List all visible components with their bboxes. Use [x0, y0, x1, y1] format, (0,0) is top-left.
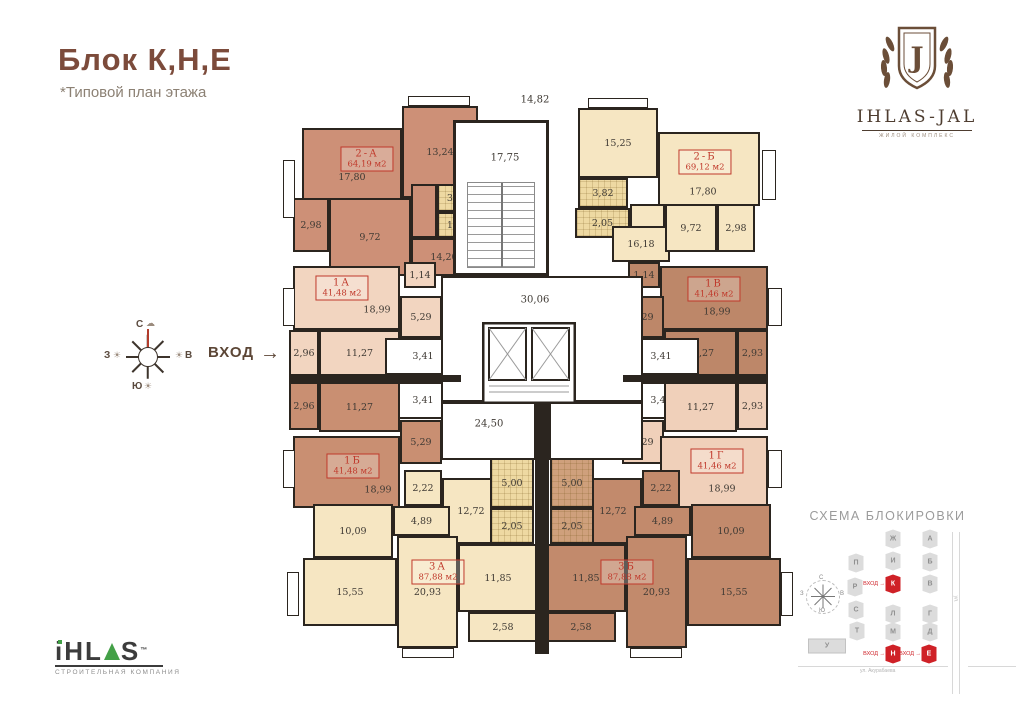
- room-area-label: 3,41: [412, 351, 433, 362]
- dimension-label: 17,75: [491, 153, 520, 164]
- apartment-label: 1А41,48 м2: [315, 276, 368, 301]
- room-area-label: 2,93: [742, 348, 763, 359]
- room: 2,93: [737, 330, 768, 376]
- room-area-label: 18,99: [708, 484, 735, 495]
- room-area-label: 20,93: [414, 587, 441, 598]
- schema-compass-south: Ю: [819, 608, 825, 614]
- room-area-label: 1,14: [409, 270, 430, 281]
- room-area-label: 4,89: [411, 516, 432, 527]
- room: 2,98: [717, 204, 755, 252]
- room: 2,22: [404, 470, 442, 506]
- room-area-label: 2,58: [570, 622, 591, 633]
- schema-block: К: [886, 575, 901, 594]
- room: 11,27: [319, 382, 400, 432]
- room: 9,72: [665, 204, 717, 252]
- room: 2,05: [550, 508, 594, 544]
- room-area-label: 15,55: [720, 587, 747, 598]
- schema-block: Б: [923, 553, 938, 572]
- balcony: [283, 160, 295, 218]
- street-name-vertical: ул.: [952, 596, 958, 603]
- balcony: [781, 572, 793, 616]
- room: 2,96: [289, 382, 319, 430]
- room-area-label: 10,09: [717, 526, 744, 537]
- street-line: [952, 532, 953, 694]
- room-area-label: 16,18: [627, 239, 654, 250]
- staircase: [467, 182, 535, 268]
- room: [630, 204, 665, 228]
- room-area-label: 15,25: [604, 138, 631, 149]
- schema-block: В: [923, 575, 938, 594]
- schema-block: М: [886, 623, 901, 642]
- room: 10,09: [313, 504, 393, 558]
- balcony: [768, 288, 782, 326]
- room-area-label: 9,72: [359, 232, 380, 243]
- apartment-label: 3Б87,88 м2: [600, 560, 653, 585]
- center-wall: [535, 404, 549, 654]
- schema-block: Е: [922, 645, 937, 664]
- schema-compass-west: З: [800, 591, 804, 597]
- room-area-label: 2,93: [742, 401, 763, 412]
- apartment-area: 41,48 м2: [322, 289, 361, 299]
- elevator-core: [482, 322, 576, 404]
- balcony: [402, 648, 454, 658]
- room: 11,27: [664, 382, 737, 432]
- room-area-label: 11,85: [484, 573, 511, 584]
- room-area-label: 18,99: [364, 485, 391, 496]
- apartment-area: 87,88 м2: [418, 573, 457, 583]
- room-area-label: 11,27: [346, 402, 373, 413]
- room: 9,72: [329, 198, 411, 276]
- room-area-label: 2,22: [650, 483, 671, 494]
- room-area-label: 2,58: [492, 622, 513, 633]
- room-area-label: 10,09: [339, 526, 366, 537]
- room: 3,82: [578, 178, 628, 208]
- street-name-horizontal: ул. Акурабаева: [860, 668, 895, 674]
- builder-logo-tagline: СТРОИТЕЛЬНАЯ КОМПАНИЯ: [55, 669, 215, 676]
- schema-compass-north: С: [819, 575, 823, 581]
- room: 5,29: [400, 420, 442, 464]
- balcony: [588, 98, 648, 108]
- schema-block: Т: [850, 622, 865, 641]
- room: 2,58: [468, 612, 538, 642]
- apartment-label: 1Б41,48 м2: [326, 454, 379, 479]
- schema-compass-east: В: [840, 591, 844, 597]
- room-area-label: 3,41: [650, 351, 671, 362]
- schema-block: Ж: [886, 530, 901, 549]
- stair-divider: [501, 183, 503, 267]
- room: 5,00: [490, 458, 534, 508]
- balcony: [630, 648, 682, 658]
- schema-block: Д: [923, 623, 938, 642]
- builder-logo: iHLS™ СТРОИТЕЛЬНАЯ КОМПАНИЯ: [55, 638, 215, 676]
- room: 4,89: [393, 506, 450, 536]
- room-area-label: 5,29: [410, 437, 431, 448]
- balcony: [287, 572, 299, 616]
- apartment-area: 64,19 м2: [347, 160, 386, 170]
- schema-block: П: [849, 554, 864, 573]
- street-line: [968, 666, 1016, 667]
- room-area-label: 5,00: [561, 478, 582, 489]
- room: 16,18: [612, 226, 670, 262]
- room: 2,05: [490, 508, 534, 544]
- schema-block: Л: [886, 605, 901, 624]
- apartment-label: 2-А64,19 м2: [340, 147, 393, 172]
- trademark-symbol: ™: [140, 647, 149, 654]
- room-area-label: 15,55: [336, 587, 363, 598]
- apartment-area: 41,48 м2: [333, 467, 372, 477]
- room: 11,85: [458, 544, 538, 612]
- room: 15,55: [303, 558, 397, 626]
- street-line: [959, 532, 960, 694]
- room: 2,22: [642, 470, 680, 506]
- balcony: [762, 150, 776, 200]
- corridor-lower-left: [441, 402, 536, 460]
- room: [411, 184, 437, 238]
- schema-block: Г: [923, 605, 938, 624]
- room-area-label: 2,96: [293, 401, 314, 412]
- floor-plan: 17,8013,242,989,723,261,6614,2018,991,14…: [0, 0, 1024, 724]
- logo-green-dot: [58, 640, 62, 644]
- room: 20,93: [397, 536, 458, 648]
- balcony: [768, 450, 782, 488]
- room-area-label: 18,99: [703, 307, 730, 318]
- street-line: [798, 666, 948, 667]
- room-area-label: 17,80: [689, 187, 716, 198]
- room-area-label: 2,05: [592, 218, 613, 229]
- schema-entry-label: ВХОД →: [863, 651, 885, 657]
- room-area-label: 2,96: [293, 348, 314, 359]
- room: 15,25: [578, 108, 658, 178]
- apartment-label: 3А87,88 м2: [411, 560, 464, 585]
- room-area-label: 11,85: [572, 573, 599, 584]
- schema-block: А: [923, 530, 938, 549]
- west-cross-wall: [289, 375, 461, 382]
- room-area-label: 2,05: [501, 521, 522, 532]
- builder-logo-wordmark: iHLS™: [55, 638, 215, 664]
- apartment-name: 2-Б: [685, 152, 724, 163]
- room: 2,98: [293, 198, 329, 252]
- room-area-label: 20,93: [643, 587, 670, 598]
- apartment-area: 41,46 м2: [697, 462, 736, 472]
- room: 2,93: [737, 382, 768, 430]
- room-area-label: 2,05: [561, 521, 582, 532]
- apartment-label: 1Г41,46 м2: [690, 449, 743, 474]
- room: 15,55: [687, 558, 781, 626]
- room-area-label: 2,98: [300, 220, 321, 231]
- room: 2,58: [546, 612, 616, 642]
- corridor-lower-right: [549, 402, 643, 460]
- apartment-name: 3А: [418, 562, 457, 573]
- room-area-label: 3,82: [592, 188, 613, 199]
- apartment-area: 87,88 м2: [607, 573, 646, 583]
- apartment-name: 2-А: [347, 149, 386, 160]
- room: 5,00: [550, 458, 594, 508]
- room: 2,96: [289, 330, 319, 376]
- dimension-label: 30,06: [521, 295, 550, 306]
- room-area-label: 2,98: [725, 223, 746, 234]
- balcony: [283, 288, 295, 326]
- schema-entry-label: ВХОД →: [899, 651, 921, 657]
- apartment-name: 1В: [694, 279, 733, 290]
- schema-entry-label: ВХОД →: [863, 581, 885, 587]
- room-area-label: 11,27: [346, 348, 373, 359]
- room-area-label: 9,72: [680, 223, 701, 234]
- apartment-area: 41,46 м2: [694, 290, 733, 300]
- schema-block: С: [849, 601, 864, 620]
- dimension-label: 24,50: [475, 419, 504, 430]
- logo-triangle-icon: [104, 643, 120, 660]
- room: 10,09: [691, 504, 771, 558]
- room-area-label: 18,99: [363, 305, 390, 316]
- room-area-label: 13,24: [426, 147, 453, 158]
- balcony: [283, 450, 295, 488]
- apartment-name: 1А: [322, 278, 361, 289]
- schema-title: СХЕМА БЛОКИРОВКИ: [795, 509, 980, 523]
- room-area-label: 3,41: [412, 395, 433, 406]
- room-area-label: 4,89: [652, 516, 673, 527]
- room-area-label: 5,00: [501, 478, 522, 489]
- room-area-label: 17,80: [338, 172, 365, 183]
- room-area-label: 12,72: [599, 506, 626, 517]
- room-area-label: 2,22: [412, 483, 433, 494]
- room: 5,29: [400, 296, 442, 338]
- room-area-label: 5,29: [410, 312, 431, 323]
- apartment-label: 2-Б69,12 м2: [678, 150, 731, 175]
- room: 4,89: [634, 506, 691, 536]
- dimension-label: 14,82: [521, 95, 550, 106]
- schema-block: У: [808, 639, 846, 654]
- room-area-label: 12,72: [457, 506, 484, 517]
- apartment-name: 1Б: [333, 456, 372, 467]
- apartment-name: 1Г: [697, 451, 736, 462]
- apartment-area: 69,12 м2: [685, 163, 724, 173]
- apartment-label: 1В41,46 м2: [687, 277, 740, 302]
- east-cross-wall: [623, 375, 768, 382]
- room: 20,93: [626, 536, 687, 648]
- schema-block: Р: [848, 578, 863, 597]
- room: 1,14: [404, 262, 436, 288]
- schema-block: И: [886, 552, 901, 571]
- room-area-label: 11,27: [687, 402, 714, 413]
- apartment-name: 3Б: [607, 562, 646, 573]
- balcony: [408, 96, 470, 106]
